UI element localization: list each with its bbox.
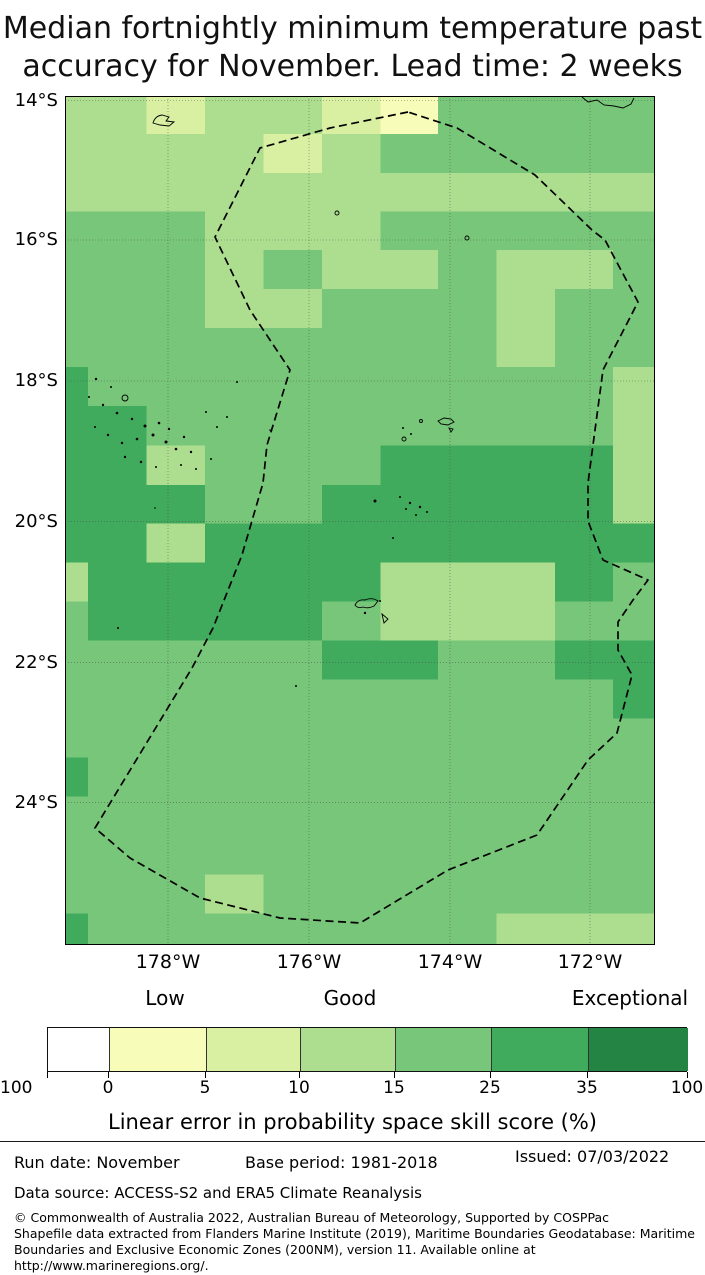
grid-cell — [497, 173, 556, 212]
grid-cell — [147, 173, 206, 212]
grid-cell — [264, 328, 323, 367]
grid-cell — [438, 289, 497, 328]
grid-cell — [88, 134, 147, 173]
grid-cell — [613, 212, 655, 251]
grid-cell — [264, 680, 323, 719]
lat-label: 22°S — [0, 652, 58, 673]
data-source: Data source: ACCESS-S2 and ERA5 Climate … — [14, 1184, 422, 1202]
title-line-1: Median fortnightly minimum temperature p… — [0, 10, 705, 48]
island-dot — [379, 600, 381, 602]
grid-cell — [381, 367, 439, 406]
colorbar-segment — [206, 1028, 300, 1071]
footer-divider — [0, 1141, 705, 1142]
grid-cell — [147, 758, 206, 797]
island-dot — [140, 461, 142, 463]
colorbar-tick — [47, 1072, 48, 1078]
grid-cell — [147, 485, 206, 524]
island-dot — [155, 466, 157, 468]
grid-cell — [438, 328, 497, 367]
island-dot — [152, 434, 155, 437]
grid-cell — [264, 602, 323, 641]
grid-cell — [381, 250, 439, 289]
island-dot — [426, 511, 428, 513]
grid-cell — [555, 367, 613, 406]
grid-cell — [205, 836, 264, 875]
grid-cell — [497, 446, 556, 486]
grid-cell — [65, 914, 88, 946]
grid-cell — [555, 602, 613, 641]
grid-cell — [88, 328, 147, 367]
island-dot — [168, 428, 170, 430]
island-dot — [190, 451, 192, 453]
grid-cell — [205, 173, 264, 212]
grid-cell — [497, 680, 556, 719]
grid-cell — [438, 563, 497, 602]
grid-cell — [205, 563, 264, 602]
grid-cell — [322, 367, 381, 406]
grid-cell — [555, 96, 613, 134]
grid-cell — [322, 836, 381, 875]
grid-cell — [264, 367, 323, 406]
grid-cell — [88, 485, 147, 524]
grid-cell — [88, 367, 147, 406]
grid-cell — [555, 680, 613, 719]
island-dot — [116, 412, 119, 415]
grid-cell — [322, 563, 381, 602]
grid-cell — [322, 250, 381, 289]
grid-cell — [147, 367, 206, 406]
grid-cell — [381, 289, 439, 328]
grid-cell — [322, 485, 381, 524]
grid-cell — [88, 96, 147, 134]
grid-cell — [555, 719, 613, 758]
title-line-2: accuracy for November. Lead time: 2 week… — [0, 48, 705, 86]
grid-cell — [65, 134, 88, 173]
colorbar-tick-label: 35 — [576, 1078, 598, 1098]
colorbar-tick-label: 5 — [200, 1078, 211, 1098]
island-dot — [415, 514, 417, 516]
grid-cell — [147, 289, 206, 328]
island-dot — [117, 627, 119, 629]
grid-cell — [381, 563, 439, 602]
grid-cell — [205, 328, 264, 367]
grid-cell — [147, 719, 206, 758]
island-dot — [210, 458, 212, 460]
grid-cell — [613, 875, 655, 914]
grid-cell — [438, 485, 497, 524]
grid-cell — [322, 446, 381, 486]
grid-cell — [438, 173, 497, 212]
island-dot — [102, 404, 104, 406]
grid-cell — [88, 446, 147, 486]
grid-cell — [497, 524, 556, 563]
grid-cell — [555, 524, 613, 563]
grid-cell — [147, 914, 206, 946]
grid-cell — [497, 797, 556, 836]
grid-cell — [88, 641, 147, 680]
grid-cell — [497, 875, 556, 914]
island-dot — [205, 411, 207, 413]
grid-cell — [613, 250, 655, 289]
grid-cell — [381, 406, 439, 446]
island-dot — [95, 378, 97, 380]
lat-label: 16°S — [0, 229, 58, 250]
grid-cell — [438, 212, 497, 251]
grid-cell — [205, 719, 264, 758]
grid-cell — [205, 212, 264, 251]
grid-cell — [147, 406, 206, 446]
island-dot — [364, 612, 366, 614]
grid-cell — [613, 641, 655, 680]
grid-cell — [613, 836, 655, 875]
island-dot — [410, 433, 412, 435]
grid-cell — [264, 173, 323, 212]
grid-cell — [497, 406, 556, 446]
grid-cell — [88, 524, 147, 563]
grid-cell — [264, 134, 323, 173]
grid-cell — [322, 758, 381, 797]
grid-cell — [65, 367, 88, 406]
grid-cell — [205, 289, 264, 328]
grid-cell — [555, 406, 613, 446]
grid-cell — [381, 719, 439, 758]
grid-cell — [497, 134, 556, 173]
grid-cell — [205, 485, 264, 524]
grid-cell — [65, 524, 88, 563]
grid-cell — [264, 563, 323, 602]
grid-cell — [497, 914, 556, 946]
island-dot — [158, 422, 161, 425]
lat-label: 24°S — [0, 792, 58, 813]
grid-cell — [555, 289, 613, 328]
grid-cell — [613, 485, 655, 524]
grid-cell — [65, 758, 88, 797]
grid-cell — [438, 875, 497, 914]
grid-cell — [65, 836, 88, 875]
lon-label: 178°W — [128, 951, 208, 973]
grid-cell — [497, 758, 556, 797]
island-dot — [136, 438, 139, 441]
grid-cell — [555, 797, 613, 836]
grid-cell — [497, 602, 556, 641]
copyright-line: Boundaries and Exclusive Economic Zones … — [14, 1242, 536, 1258]
grid-cell — [613, 524, 655, 563]
lat-label: 14°S — [0, 90, 58, 111]
island-dot — [144, 425, 147, 428]
base-period: Base period: 1981-2018 — [245, 1153, 438, 1172]
grid-cell — [381, 836, 439, 875]
colorbar — [47, 1027, 687, 1072]
grid-cell — [65, 602, 88, 641]
island-dot — [236, 381, 238, 383]
grid-cell — [205, 524, 264, 563]
grid-cell — [322, 524, 381, 563]
island-dot — [110, 386, 112, 388]
grid-cell — [555, 250, 613, 289]
grid-cell — [381, 173, 439, 212]
page-title: Median fortnightly minimum temperature p… — [0, 10, 705, 86]
grid-cell — [322, 875, 381, 914]
grid-cell — [322, 406, 381, 446]
grid-cell — [264, 212, 323, 251]
island-dot — [402, 427, 404, 429]
island-dot — [88, 396, 90, 398]
grid-cell — [65, 406, 88, 446]
grid-cell — [147, 563, 206, 602]
grid-cell — [264, 641, 323, 680]
island-dot — [405, 508, 407, 510]
grid-cell — [205, 406, 264, 446]
island-dot — [124, 456, 126, 458]
grid-cell — [613, 914, 655, 946]
grid-cell — [497, 328, 556, 367]
grid-cell — [497, 96, 556, 134]
grid-cell — [497, 719, 556, 758]
colorbar-zone-label: Good — [324, 986, 377, 1010]
grid-cell — [205, 797, 264, 836]
colorbar-segment — [491, 1028, 588, 1071]
copyright-line: Shapefile data extracted from Flanders M… — [14, 1226, 695, 1242]
island-dot — [107, 434, 109, 436]
grid-cell — [438, 641, 497, 680]
grid-cell — [147, 836, 206, 875]
island-dot — [295, 685, 297, 687]
grid-cell — [381, 96, 439, 134]
grid-cell — [147, 524, 206, 563]
grid-cell — [88, 212, 147, 251]
lat-label: 18°S — [0, 370, 58, 391]
grid-cell — [497, 485, 556, 524]
grid-cell — [65, 875, 88, 914]
colorbar-tick-label: 15 — [383, 1078, 405, 1098]
grid-cell — [205, 680, 264, 719]
grid-cell — [205, 602, 264, 641]
grid-cell — [381, 134, 439, 173]
colorbar-zone-label: Exceptional — [572, 986, 688, 1010]
grid-cell — [381, 641, 439, 680]
grid-cell — [65, 289, 88, 328]
copyright-line: © Commonwealth of Australia 2022, Austra… — [14, 1210, 609, 1226]
grid-cell — [322, 212, 381, 251]
grid-cell — [322, 289, 381, 328]
island-dot — [175, 448, 178, 451]
grid-cell — [497, 212, 556, 251]
grid-cell — [147, 96, 206, 134]
grid-cell — [264, 524, 323, 563]
grid-cell — [264, 250, 323, 289]
colorbar-zone-label: Low — [145, 986, 184, 1010]
grid-cell — [205, 367, 264, 406]
grid-cell — [381, 446, 439, 486]
issued-date: Issued: 07/03/2022 — [515, 1147, 669, 1166]
grid-cell — [555, 563, 613, 602]
grid-cell — [65, 250, 88, 289]
grid-cell — [65, 680, 88, 719]
grid-cell — [147, 446, 206, 486]
grid-cell — [322, 719, 381, 758]
colorbar-tick-label: 100 — [671, 1078, 703, 1098]
island-dot — [374, 500, 377, 503]
grid-cell — [438, 250, 497, 289]
grid-cell — [381, 758, 439, 797]
lat-label: 20°S — [0, 511, 58, 532]
grid-cell — [264, 289, 323, 328]
grid-cell — [65, 485, 88, 524]
grid-cell — [438, 524, 497, 563]
grid-cell — [555, 485, 613, 524]
grid-cell — [555, 212, 613, 251]
island-dot — [183, 436, 185, 438]
grid-cell — [613, 406, 655, 446]
grid-cell — [381, 328, 439, 367]
island-dot — [165, 441, 168, 444]
grid-cell — [65, 719, 88, 758]
grid-cell — [613, 96, 655, 134]
grid-cell — [147, 797, 206, 836]
grid-cell — [205, 641, 264, 680]
grid-cell — [322, 173, 381, 212]
grid-cell — [147, 680, 206, 719]
grid-cell — [381, 524, 439, 563]
grid-cell — [65, 212, 88, 251]
lon-label: 174°W — [410, 951, 490, 973]
island-dot — [216, 426, 218, 428]
colorbar-segment — [395, 1028, 491, 1071]
grid-cell — [613, 719, 655, 758]
colorbar-segment — [588, 1028, 688, 1071]
grid-cell — [88, 914, 147, 946]
grid-cell — [147, 875, 206, 914]
grid-cell — [497, 367, 556, 406]
skill-map-page: Median fortnightly minimum temperature p… — [0, 0, 705, 1275]
grid-cell — [438, 406, 497, 446]
lon-label: 172°W — [550, 951, 630, 973]
grid-cell — [438, 914, 497, 946]
grid-cell — [497, 641, 556, 680]
grid-cell — [613, 680, 655, 719]
grid-cell — [65, 446, 88, 486]
island-dot — [195, 468, 197, 470]
colorbar-tick-label: 10 — [288, 1078, 310, 1098]
grid-cell — [205, 446, 264, 486]
grid-cell — [147, 641, 206, 680]
grid-cell — [65, 797, 88, 836]
colorbar-segment — [300, 1028, 395, 1071]
grid-cell — [65, 641, 88, 680]
grid-cell — [205, 134, 264, 173]
island-dot — [121, 442, 123, 444]
grid-cell — [438, 96, 497, 134]
grid-cell — [88, 719, 147, 758]
skill-map — [65, 96, 655, 945]
grid-cell — [264, 719, 323, 758]
grid-cell — [65, 173, 88, 212]
grid-cell — [381, 680, 439, 719]
grid-cell — [264, 96, 323, 134]
grid-cell — [381, 797, 439, 836]
grid-cell — [613, 563, 655, 602]
grid-cell — [497, 289, 556, 328]
grid-cell — [205, 914, 264, 946]
grid-cell — [438, 719, 497, 758]
grid-cell — [264, 446, 323, 486]
grid-cell — [613, 758, 655, 797]
island-dot — [180, 464, 182, 466]
island-dot — [399, 496, 401, 498]
grid-cell — [205, 758, 264, 797]
grid-cell — [88, 173, 147, 212]
grid-cell — [147, 602, 206, 641]
grid-cell — [322, 134, 381, 173]
grid-cell — [88, 680, 147, 719]
colorbar-axis-label: Linear error in probability space skill … — [0, 1110, 705, 1134]
grid-cell — [147, 250, 206, 289]
grid-cell — [497, 836, 556, 875]
island-dot — [392, 537, 394, 539]
grid-cell — [438, 367, 497, 406]
grid-cell — [555, 446, 613, 486]
grid-cell — [555, 914, 613, 946]
grid-cell — [555, 758, 613, 797]
grid-cell — [322, 328, 381, 367]
grid-cell — [438, 134, 497, 173]
grid-cell — [613, 173, 655, 212]
grid-cell — [65, 96, 88, 134]
grid-cell — [205, 875, 264, 914]
grid-cell — [613, 328, 655, 367]
grid-cell — [555, 641, 613, 680]
grid-cell — [205, 96, 264, 134]
grid-cell — [381, 914, 439, 946]
grid-cell — [264, 797, 323, 836]
copyright-line: http://www.marineregions.org/. — [14, 1258, 209, 1274]
grid-cell — [88, 602, 147, 641]
grid-cell — [205, 250, 264, 289]
grid-cell — [147, 328, 206, 367]
grid-cell — [264, 836, 323, 875]
grid-cell — [438, 446, 497, 486]
grid-cell — [555, 173, 613, 212]
colorbar-tick-label: 0 — [103, 1078, 114, 1098]
grid-cell — [613, 797, 655, 836]
island-dot — [154, 507, 156, 509]
grid-cell — [555, 328, 613, 367]
grid-cell — [497, 250, 556, 289]
grid-cell — [147, 134, 206, 173]
grid-cell — [264, 875, 323, 914]
grid-cell — [88, 563, 147, 602]
skill-grid-cells — [65, 96, 655, 945]
grid-cell — [438, 797, 497, 836]
grid-cell — [613, 446, 655, 486]
grid-cell — [88, 250, 147, 289]
grid-cell — [264, 758, 323, 797]
island-dot — [409, 502, 411, 504]
colorbar-tick-label: 100 — [0, 1078, 32, 1098]
island-dot — [419, 506, 421, 508]
grid-cell — [381, 602, 439, 641]
colorbar-segment — [48, 1028, 109, 1071]
grid-cell — [555, 134, 613, 173]
grid-cell — [555, 875, 613, 914]
grid-cell — [147, 212, 206, 251]
grid-cell — [264, 485, 323, 524]
grid-cell — [613, 134, 655, 173]
colorbar-tick-label: 25 — [479, 1078, 501, 1098]
grid-cell — [613, 367, 655, 406]
grid-cell — [88, 289, 147, 328]
colorbar-segment — [109, 1028, 206, 1071]
